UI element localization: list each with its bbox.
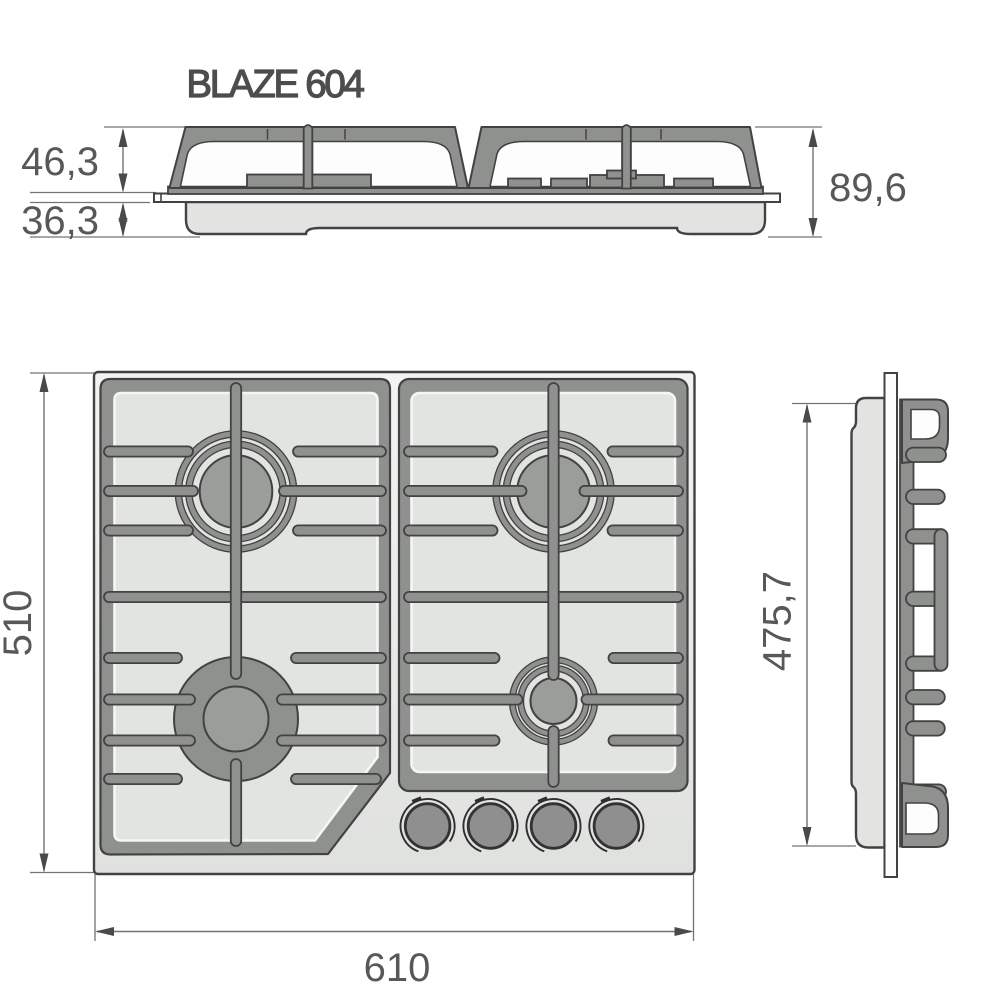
svg-text:36,3: 36,3 [21, 199, 99, 243]
svg-text:46,3: 46,3 [21, 140, 99, 184]
svg-text:475,7: 475,7 [756, 571, 800, 671]
svg-text:89,6: 89,6 [829, 166, 907, 210]
svg-text:610: 610 [364, 946, 431, 990]
svg-text:BLAZE 604: BLAZE 604 [186, 63, 364, 106]
svg-text:510: 510 [0, 590, 40, 657]
